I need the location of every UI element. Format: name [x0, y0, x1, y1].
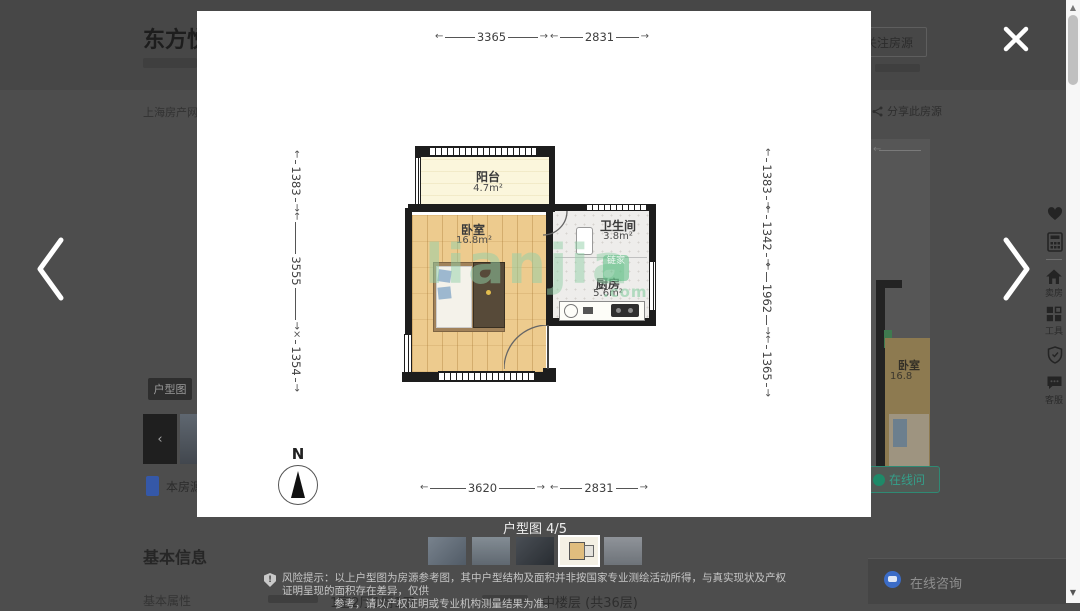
share-label: 分享此房源	[887, 103, 942, 119]
lightbox-caption: 户型图 4/5	[455, 518, 615, 537]
follow-count-placeholder	[875, 64, 920, 72]
basic-info-heading: 基本信息	[143, 544, 207, 568]
dimension-left-2: ← 3555→	[289, 212, 303, 330]
wall	[549, 157, 555, 208]
tools-grid-icon[interactable]	[1046, 306, 1062, 322]
compass-circle	[278, 465, 318, 505]
dimension-bottom-2: ← 2831→	[550, 481, 648, 495]
dimension-right-3: ← 1962→	[760, 262, 774, 335]
kitchen-counter	[559, 301, 645, 321]
dimmed-subtitle-placeholder	[143, 58, 197, 68]
balcony-bedroom-wall	[408, 204, 555, 212]
favorite-heart-icon[interactable]	[1047, 206, 1063, 221]
dimension-right-4: ← 1365→	[760, 335, 774, 380]
risk-notice-line1: 以上户型图为房源参考图，其中户型结构及面积并非按国家专业测绘活动所得，与真实现状…	[282, 572, 786, 597]
wall	[536, 146, 555, 157]
calculator-icon[interactable]	[1047, 232, 1063, 252]
this-listing-row: 本房源	[146, 476, 202, 496]
bg-dim-line	[879, 150, 921, 151]
watermark-suffix: .com	[603, 283, 648, 301]
bg-floorplan-panel: ← 卧室 16.8	[871, 139, 930, 492]
window	[429, 146, 536, 157]
shield-icon[interactable]	[1047, 346, 1063, 364]
window	[586, 204, 646, 211]
window	[404, 334, 412, 374]
follow-listing-label: 关注房源	[865, 34, 913, 51]
rail-divider	[1046, 259, 1062, 260]
share-icon	[872, 106, 883, 117]
thumbnail-floorplan-fragment	[569, 542, 585, 560]
bg-wall-bar	[876, 282, 885, 492]
floorplan-tag[interactable]: 户型图	[148, 378, 192, 400]
scrollbar[interactable]: ▲ ▼	[1066, 0, 1080, 603]
risk-notice-line2: 参考，请以产权证明或专业机构测量结果为准。	[334, 598, 794, 611]
compass: N	[278, 445, 318, 507]
thumbnail[interactable]	[428, 537, 466, 565]
chat-bubble-icon	[884, 571, 901, 588]
customer-service-label[interactable]: 客服	[1044, 393, 1064, 406]
wall	[415, 146, 429, 157]
dimension-top-2: ← 2831→	[550, 30, 649, 44]
window	[649, 261, 656, 311]
watermark-text: lianjia	[425, 233, 631, 296]
wall	[402, 372, 438, 382]
shield-alert-icon: !	[264, 573, 276, 587]
wall	[543, 368, 556, 382]
dimension-left-3: × 1354→	[289, 330, 303, 378]
dimension-bottom-1: ← 3620→	[420, 481, 545, 495]
customer-service-chat-icon[interactable]	[1046, 375, 1063, 391]
floorplan-tag-label: 户型图	[154, 381, 187, 397]
compass-needle	[291, 471, 305, 498]
dimension-right-1: ← 1383→	[760, 148, 774, 205]
thumbnail[interactable]	[472, 537, 510, 565]
scroll-up-icon[interactable]: ▲	[1066, 3, 1080, 12]
sell-house-icon[interactable]	[1045, 268, 1063, 285]
risk-notice-label: 风险提示：	[282, 572, 335, 584]
sell-house-label[interactable]: 卖房	[1044, 286, 1064, 299]
tools-label[interactable]: 工具	[1044, 324, 1064, 337]
previous-image-button[interactable]	[33, 235, 67, 303]
thumbnail-selected[interactable]	[560, 537, 598, 565]
floorplan-lightbox: ← 3365→ ← 2831→ ← 3620→ ← 2831→ ← 1383→ …	[197, 11, 871, 517]
thumbnail[interactable]	[516, 537, 554, 565]
dimension-right-2: ← 1342→	[760, 205, 774, 262]
chat-widget[interactable]: 在线咨询	[868, 558, 1066, 604]
next-image-button[interactable]	[1000, 235, 1034, 303]
thumbnail-floorplan-fragment	[584, 545, 594, 557]
basic-attr-label: 基本属性	[143, 592, 191, 609]
watermark-logo-badge: 链家	[603, 255, 629, 281]
close-icon[interactable]	[1001, 24, 1031, 54]
dimension-top-1: ← 3365→	[435, 30, 548, 44]
door-arc-entry	[504, 325, 548, 369]
screen: { "page": { "title": "东方悦", "breadcrumb"…	[0, 0, 1080, 603]
wall	[649, 204, 656, 261]
scroll-down-icon[interactable]: ▼	[1066, 588, 1080, 597]
online-ask-label: 在线问	[889, 471, 925, 488]
share-listing[interactable]: 分享此房源	[872, 103, 942, 119]
thumbnail[interactable]	[604, 537, 642, 565]
risk-notice: ! 风险提示：以上户型图为房源参考图，其中户型结构及面积并非按国家专业测绘活动所…	[264, 572, 794, 611]
bg-thumb-prev[interactable]: ‹	[143, 414, 177, 464]
online-ask-icon	[873, 474, 885, 486]
breadcrumb[interactable]: 上海房产网	[143, 104, 198, 120]
scrollbar-thumb[interactable]	[1068, 15, 1078, 85]
compass-n-label: N	[278, 445, 318, 463]
bg-room-area: 16.8	[890, 371, 912, 382]
document-icon	[146, 476, 159, 496]
window	[438, 371, 535, 382]
bg-bed-pillow-fragment	[893, 419, 907, 447]
sink-icon	[564, 304, 578, 318]
bg-dim-arrow: ←	[873, 144, 881, 155]
wall	[405, 208, 412, 334]
window	[415, 157, 421, 208]
stove-icon	[611, 304, 639, 317]
drain-rack-icon	[583, 307, 593, 314]
chat-widget-label: 在线咨询	[910, 573, 962, 592]
balcony-area: 4.7m²	[458, 183, 518, 194]
dimension-left-1: ← 1383→	[289, 150, 303, 212]
